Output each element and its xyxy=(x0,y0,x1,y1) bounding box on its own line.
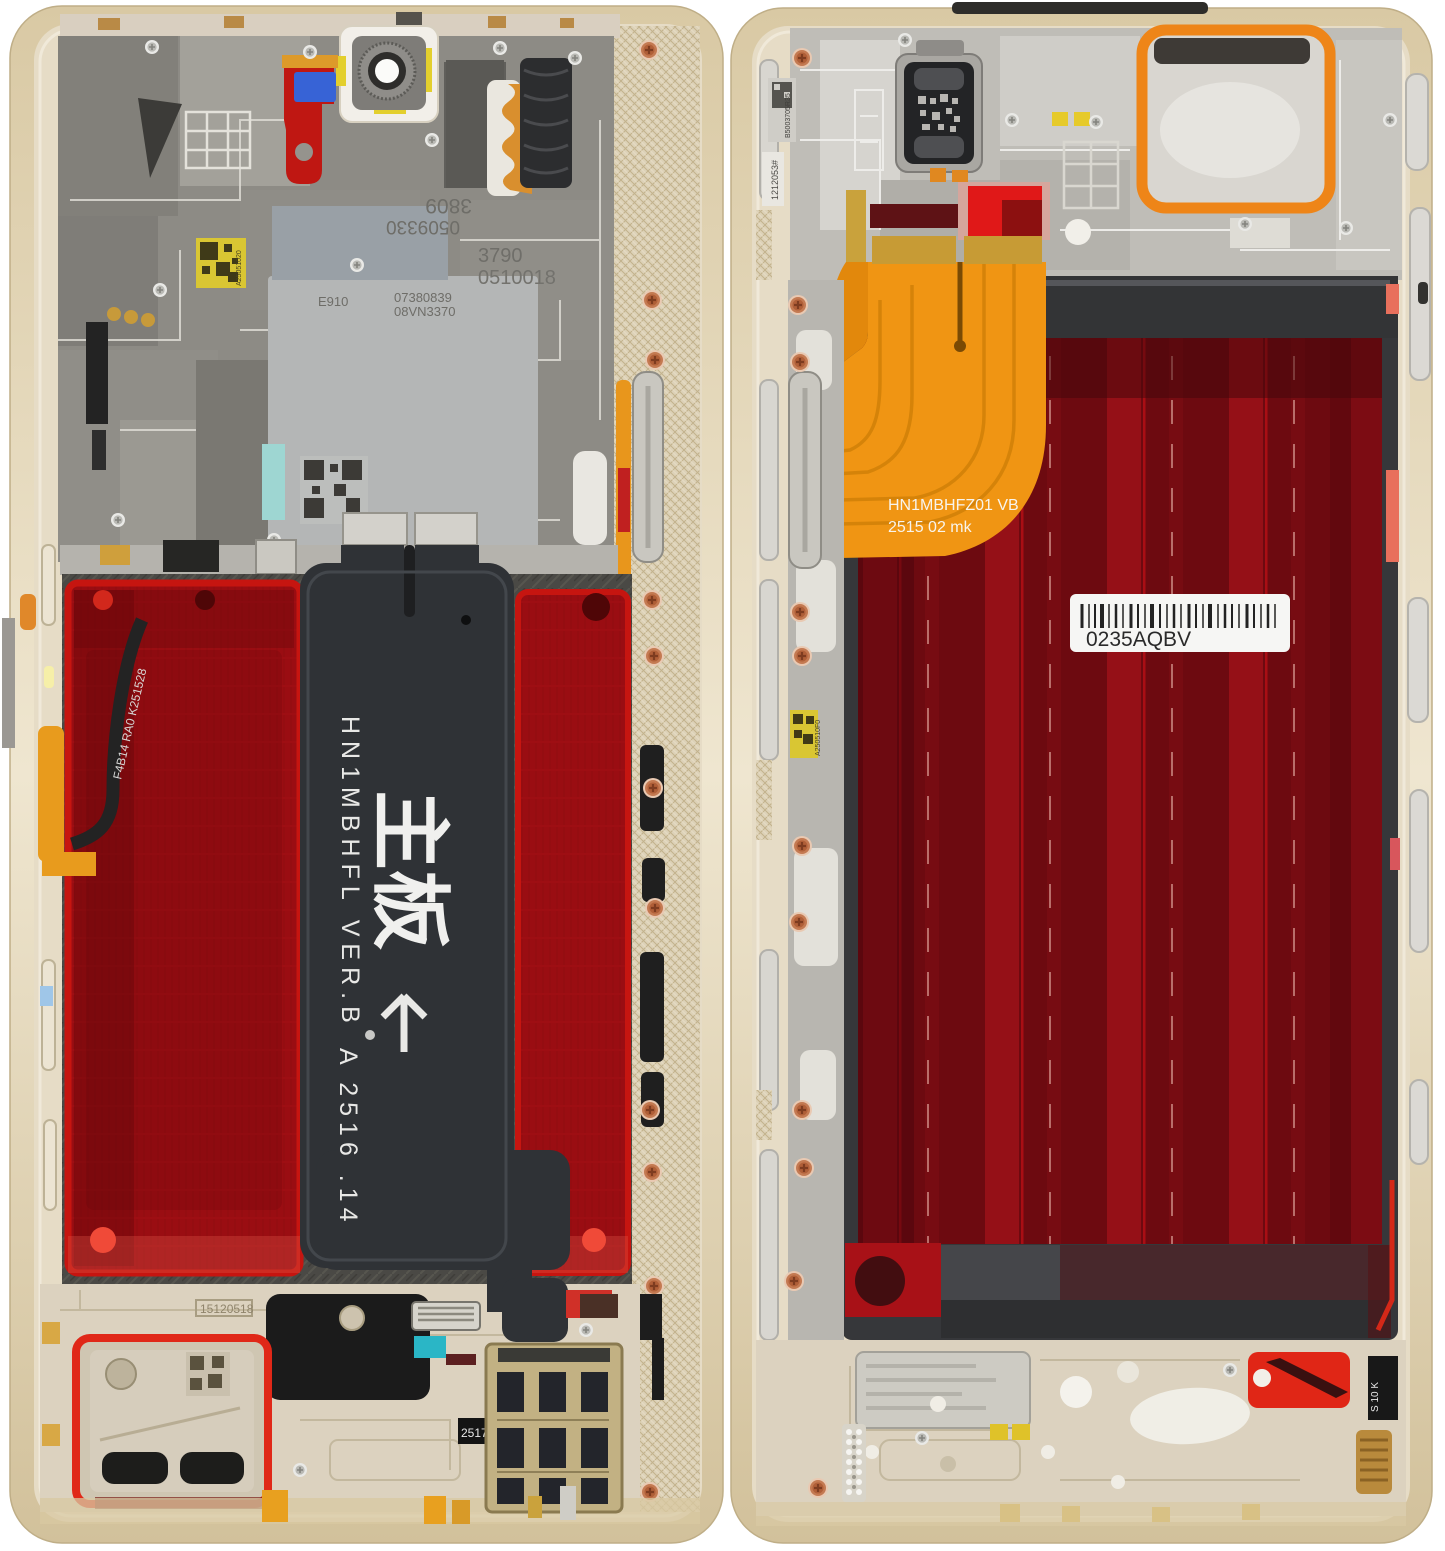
svg-text:A250510F0: A250510F0 xyxy=(815,720,822,756)
svg-text:0510018: 0510018 xyxy=(478,267,556,289)
svg-text:B5003705R35: B5003705R35 xyxy=(785,93,792,138)
svg-text:E910: E910 xyxy=(318,294,348,309)
svg-text:HN1MBHFL VER.B: HN1MBHFL VER.B xyxy=(336,716,364,1030)
svg-text:3790: 3790 xyxy=(478,245,523,267)
svg-text:A25051020: A25051020 xyxy=(236,250,243,286)
svg-text:A 2516 .14: A 2516 .14 xyxy=(334,1048,362,1228)
svg-text:2515 02 mk: 2515 02 mk xyxy=(888,519,973,536)
svg-text:08VN3370: 08VN3370 xyxy=(394,304,455,319)
svg-text:0509330: 0509330 xyxy=(386,216,460,237)
svg-text:0235AQBV: 0235AQBV xyxy=(1086,628,1191,651)
svg-text:S 10 K: S 10 K xyxy=(1370,1382,1381,1412)
svg-text:07380839: 07380839 xyxy=(394,290,452,305)
svg-text:HN1MBHFZ01 VB: HN1MBHFZ01 VB xyxy=(888,497,1019,514)
svg-text:3809: 3809 xyxy=(425,194,472,217)
svg-text:主板: 主板 xyxy=(365,790,454,950)
svg-text:2517: 2517 xyxy=(461,1426,488,1440)
svg-text:15120518: 15120518 xyxy=(200,1302,254,1316)
svg-text:1212053#: 1212053# xyxy=(770,160,780,200)
